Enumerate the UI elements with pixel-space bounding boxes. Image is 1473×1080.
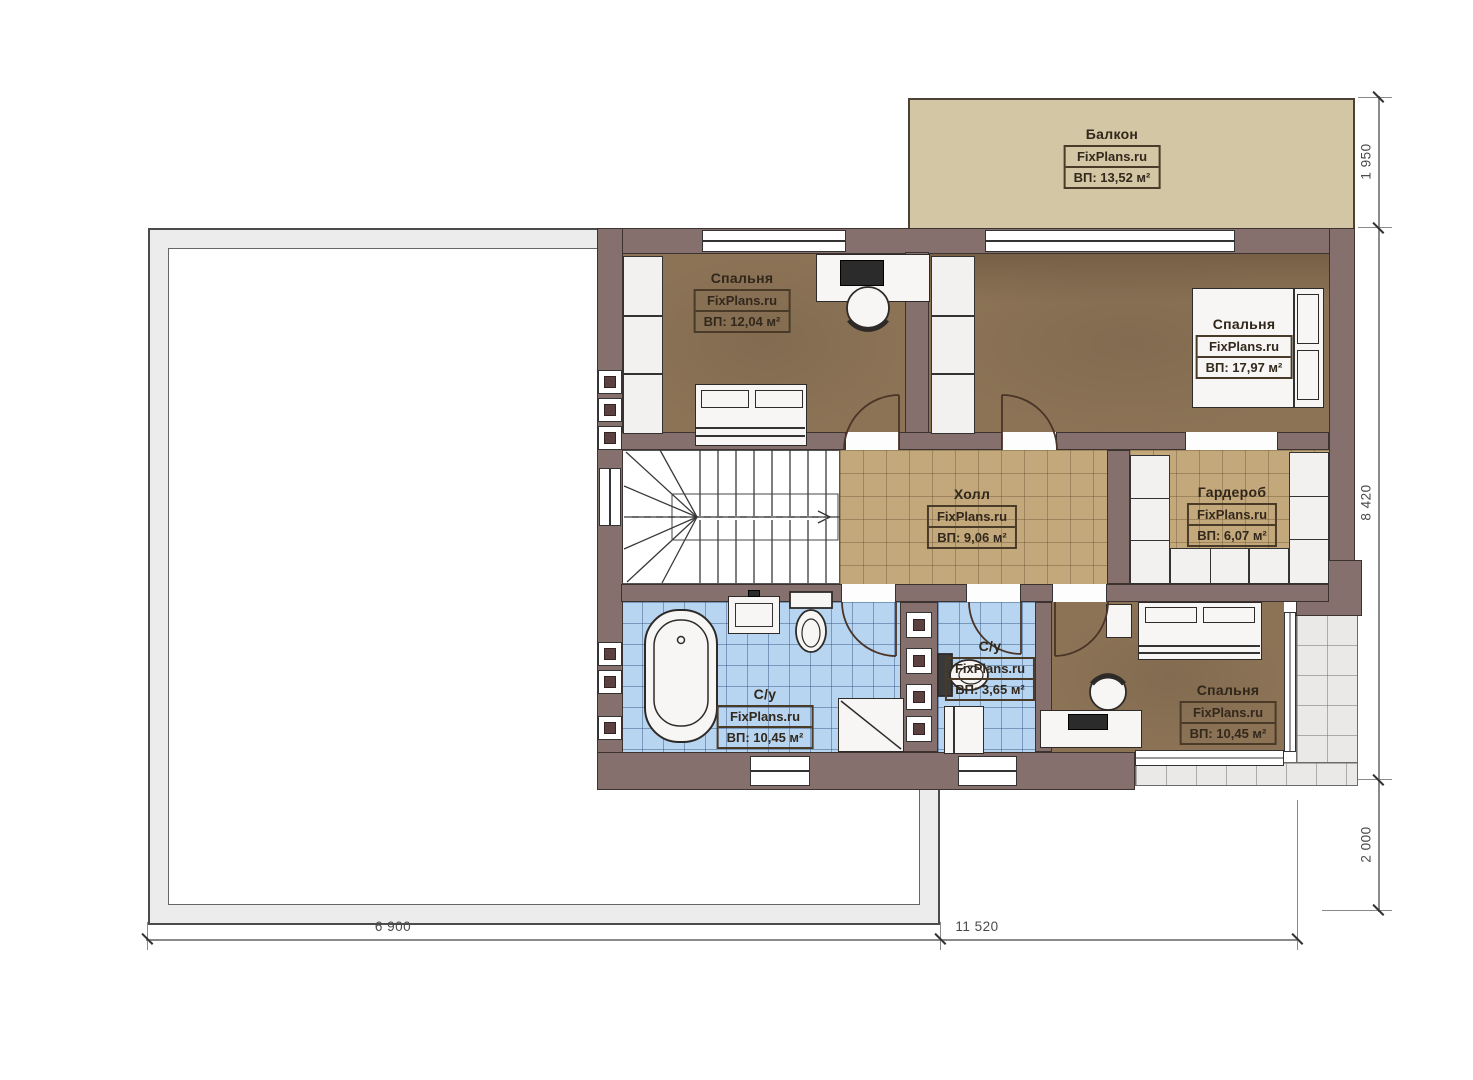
door-opening-wardrobe (1185, 432, 1278, 450)
room-area: ВП: 10,45 м² (719, 728, 812, 747)
dimension-terrace-drop: 2 000 (1359, 790, 1374, 900)
nightstand (1106, 604, 1132, 638)
room-area: ВП: 17,97 м² (1198, 358, 1291, 377)
vent-block (906, 612, 932, 638)
extension-line (1297, 800, 1298, 950)
printer (840, 260, 884, 286)
watermark-box: FixPlans.ru ВП: 13,52 м² (1064, 145, 1161, 189)
window-balcony-slider (985, 230, 1235, 252)
window-stairwell (599, 468, 621, 526)
extension-line (147, 922, 148, 950)
roof-terrace-tiles-vertical (1296, 614, 1358, 786)
door-opening-bathroom-main (841, 584, 896, 602)
shower (838, 698, 904, 752)
room-area: ВП: 12,04 м² (696, 312, 789, 331)
room-label-bedroom-top-right: Спальня FixPlans.ru ВП: 17,97 м² (1196, 316, 1293, 379)
floor-plan-canvas: Балкон FixPlans.ru ВП: 13,52 м² Спальня … (0, 0, 1473, 1080)
watermark-text: FixPlans.ru (696, 291, 789, 312)
room-label-bedroom-bottom-right: Спальня FixPlans.ru ВП: 10,45 м² (1180, 682, 1277, 745)
wall-right (1329, 228, 1355, 616)
window-bedroom-bottom-east (1284, 612, 1296, 752)
bed-double (1138, 602, 1262, 660)
watermark-text: FixPlans.ru (1182, 703, 1275, 724)
watermark-box: FixPlans.ru ВП: 10,45 м² (717, 705, 814, 749)
room-area: ВП: 3,65 м² (947, 680, 1033, 699)
dimension-terrace-width: 6 900 (338, 919, 448, 934)
room-area: ВП: 9,06 м² (929, 528, 1015, 547)
room-area: ВП: 10,45 м² (1182, 724, 1275, 743)
watermark-box: FixPlans.ru ВП: 12,04 м² (694, 289, 791, 333)
door-opening-bathroom-small (966, 584, 1021, 602)
room-label-bathroom-main: С/у FixPlans.ru ВП: 10,45 м² (717, 686, 814, 749)
door-opening-bedroom-top-left (845, 432, 900, 450)
washing-machine (944, 706, 984, 754)
wall-hall-wardrobe (1107, 450, 1130, 584)
dimension-balcony-depth: 1 950 (1359, 107, 1374, 217)
window-bedroom-bottom-south (1135, 750, 1284, 766)
window-bathroom-small (958, 756, 1017, 786)
extension-line (1358, 97, 1392, 98)
window-bathroom-main (750, 756, 810, 786)
room-label-bedroom-top-left: Спальня FixPlans.ru ВП: 12,04 м² (694, 270, 791, 333)
room-name: Гардероб (1198, 484, 1267, 500)
room-name: Спальня (1213, 316, 1276, 332)
watermark-text: FixPlans.ru (1189, 505, 1275, 526)
vent-block (906, 716, 932, 742)
vent-block (906, 648, 932, 674)
extension-line (1358, 779, 1392, 780)
watermark-text: FixPlans.ru (719, 707, 812, 728)
laptop (1068, 714, 1108, 730)
closet-bedroom-top-left (623, 256, 663, 434)
room-label-hall: Холл FixPlans.ru ВП: 9,06 м² (927, 486, 1017, 549)
door-opening-bedroom-bottom (1052, 584, 1107, 602)
vent-block (906, 684, 932, 710)
watermark-box: FixPlans.ru ВП: 10,45 м² (1180, 701, 1277, 745)
vent-block (598, 398, 622, 422)
sink (728, 596, 780, 634)
door-opening-bedroom-top-right (1001, 432, 1057, 450)
window-bedroom-top-left (702, 230, 846, 252)
dimension-line-right (1378, 96, 1380, 912)
vent-block (598, 670, 622, 694)
room-name: Спальня (711, 270, 774, 286)
watermark-box: FixPlans.ru ВП: 3,65 м² (945, 657, 1035, 701)
room-name: С/у (754, 686, 777, 702)
vent-block (598, 716, 622, 740)
vent-block (598, 370, 622, 394)
stairwell-floor (621, 450, 840, 584)
room-name: Спальня (1197, 682, 1260, 698)
watermark-box: FixPlans.ru ВП: 17,97 м² (1196, 335, 1293, 379)
wardrobe-shelves-left (1130, 455, 1170, 584)
room-name: Балкон (1086, 126, 1138, 142)
room-area: ВП: 6,07 м² (1189, 526, 1275, 545)
room-name: Холл (954, 486, 990, 502)
room-area: ВП: 13,52 м² (1066, 168, 1159, 187)
room-label-balcony: Балкон FixPlans.ru ВП: 13,52 м² (1064, 126, 1161, 189)
wardrobe-shelves-bottom (1170, 548, 1289, 584)
room-label-wardrobe: Гардероб FixPlans.ru ВП: 6,07 м² (1187, 484, 1277, 547)
watermark-box: FixPlans.ru ВП: 9,06 м² (927, 505, 1017, 549)
watermark-text: FixPlans.ru (929, 507, 1015, 528)
room-label-bathroom-small: С/у FixPlans.ru ВП: 3,65 м² (945, 638, 1035, 701)
dimension-house-width: 11 520 (922, 919, 1032, 934)
bed-double (695, 384, 807, 446)
wardrobe-shelves-right (1289, 452, 1329, 584)
vent-block (598, 426, 622, 450)
vent-block (598, 642, 622, 666)
watermark-box: FixPlans.ru ВП: 6,07 м² (1187, 503, 1277, 547)
room-name: С/у (979, 638, 1002, 654)
faucet (748, 590, 760, 597)
wall-bottom (597, 752, 1135, 790)
dimension-house-depth: 8 420 (1359, 448, 1374, 558)
watermark-text: FixPlans.ru (947, 659, 1033, 680)
watermark-text: FixPlans.ru (1198, 337, 1291, 358)
extension-line (1358, 227, 1392, 228)
closet-bedroom-top-right (931, 256, 975, 434)
dimension-line-bottom (146, 939, 1298, 941)
watermark-text: FixPlans.ru (1066, 147, 1159, 168)
